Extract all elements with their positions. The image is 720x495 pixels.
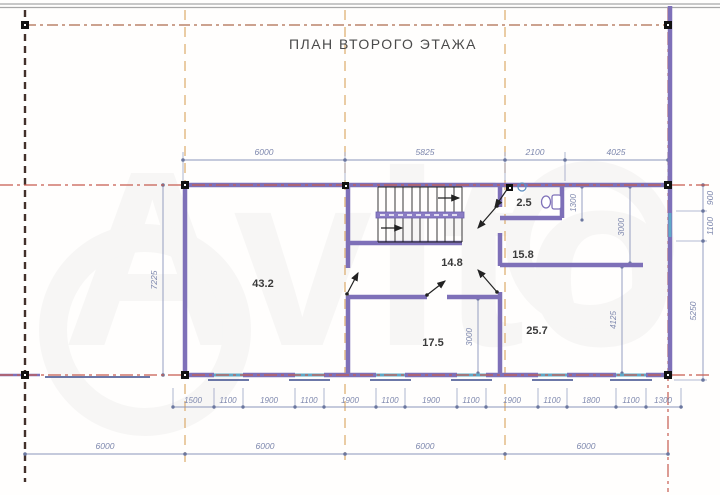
chain-0: 1500: [184, 396, 202, 405]
column-marker: [181, 371, 189, 379]
chain-5: 1100: [381, 396, 399, 405]
chain-7: 1100: [462, 396, 480, 405]
room-label-wc: 2.5: [516, 197, 531, 209]
dim-left: 7225: [149, 270, 159, 289]
overall-0: 6000: [96, 441, 115, 451]
column-marker: [664, 181, 672, 189]
watermark-text: Avito: [62, 119, 678, 398]
plan-title: ПЛАН ВТОРОГО ЭТАЖА: [289, 36, 477, 52]
room-label-hall: 14.8: [441, 257, 462, 269]
toilet-tank-icon: [552, 195, 561, 209]
dim-top-0: 6000: [255, 147, 274, 157]
chain-6: 1900: [422, 396, 440, 405]
chain-12: 1300: [654, 396, 672, 405]
chain-10: 1800: [582, 396, 600, 405]
column-marker: [664, 371, 672, 379]
chain-8: 1900: [503, 396, 521, 405]
dim-right-2: 5250: [688, 301, 698, 320]
column-marker: [21, 371, 29, 379]
room-label-living: 43.2: [252, 278, 273, 290]
chain-2: 1900: [260, 396, 278, 405]
floor-plan-canvas: Avito 6000 5825 2100 4025 722: [0, 0, 720, 495]
dim-wc-depth: 1300: [569, 194, 578, 212]
room-label-roomb: 25.7: [526, 325, 547, 337]
dim-top-3: 4025: [607, 147, 626, 157]
overall-1: 6000: [256, 441, 275, 451]
dim-rooma-depth: 3000: [465, 328, 474, 346]
room-label-cabinet: 15.8: [512, 249, 533, 261]
column-marker: [21, 21, 29, 29]
overall-3: 6000: [577, 441, 596, 451]
chain-1: 1100: [219, 396, 237, 405]
chain-11: 1100: [622, 396, 640, 405]
chain-9: 1100: [543, 396, 561, 405]
overall-2: 6000: [416, 441, 435, 451]
column-marker: [342, 182, 349, 189]
toilet-icon: [542, 196, 551, 208]
dim-roomb-depth: 4125: [609, 311, 618, 329]
dim-cabinet-depth: 3000: [617, 218, 626, 236]
dim-right-1: 1100: [705, 217, 715, 236]
floor-plan-page: Avito 6000 5825 2100 4025 722: [0, 0, 720, 495]
dim-right-0: 900: [705, 191, 715, 205]
chain-3: 1100: [300, 396, 318, 405]
dim-top-2: 2100: [525, 147, 545, 157]
room-label-rooma: 17.5: [422, 337, 443, 349]
column-marker: [664, 21, 672, 29]
chain-4: 1900: [341, 396, 359, 405]
column-marker: [181, 181, 189, 189]
dim-top-1: 5825: [416, 147, 435, 157]
column-marker: [506, 184, 513, 191]
